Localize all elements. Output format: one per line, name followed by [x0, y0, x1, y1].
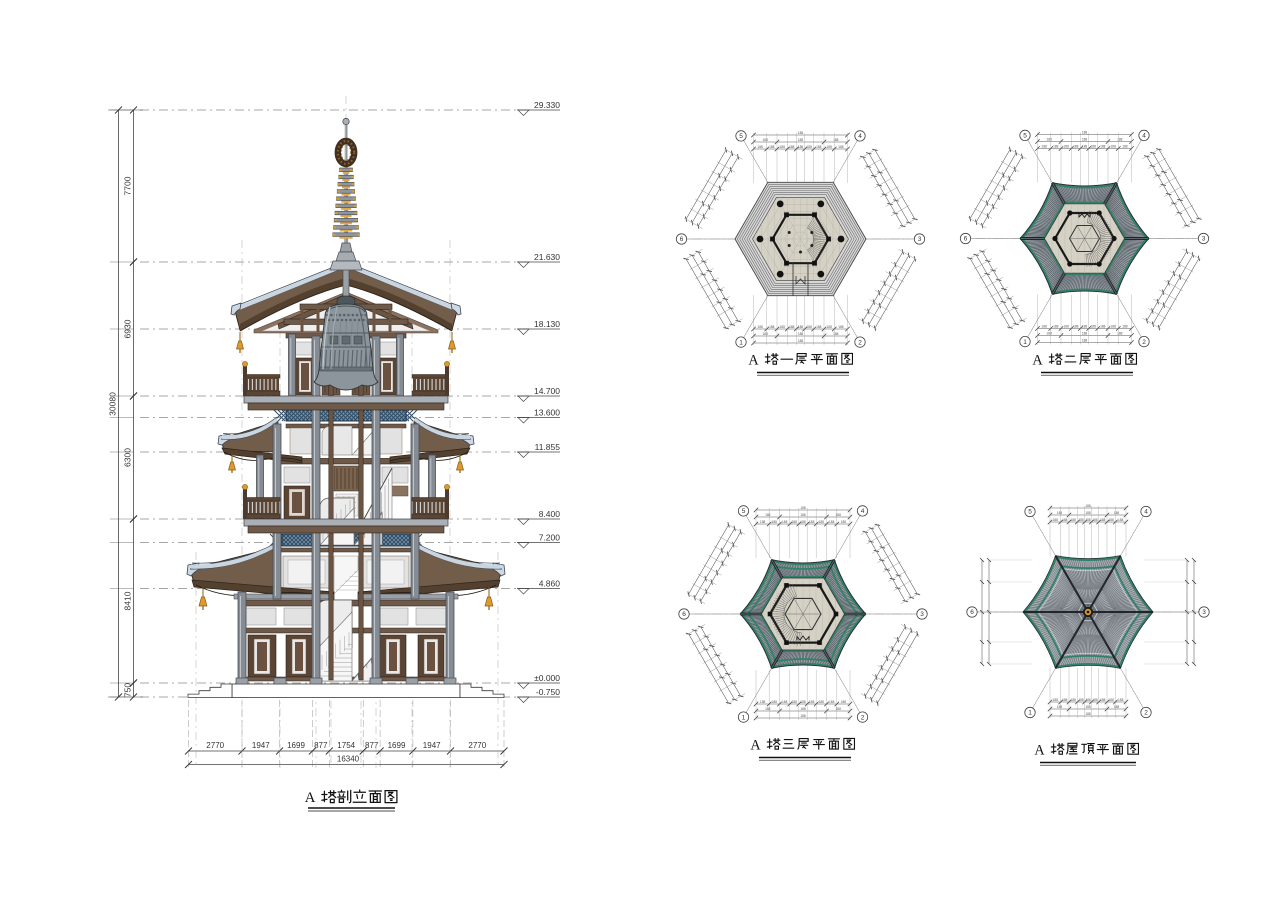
svg-text:188: 188 [769, 325, 775, 329]
svg-text:6: 6 [682, 611, 686, 618]
svg-text:188: 188 [772, 700, 778, 704]
svg-text:188: 188 [1109, 518, 1115, 522]
svg-text:21.630: 21.630 [534, 252, 560, 262]
svg-text:188: 188 [1064, 324, 1070, 328]
svg-text:188: 188 [1047, 137, 1053, 141]
svg-text:5: 5 [1023, 133, 1027, 140]
svg-text:188: 188 [780, 145, 786, 149]
svg-text:188: 188 [1057, 511, 1063, 515]
svg-text:6: 6 [680, 236, 684, 243]
svg-text:188: 188 [827, 145, 833, 149]
svg-text:188: 188 [760, 700, 766, 704]
svg-text:A: A [305, 790, 316, 806]
svg-text:188: 188 [782, 520, 788, 524]
svg-text:14.700: 14.700 [534, 386, 560, 396]
svg-text:188: 188 [792, 700, 798, 704]
svg-text:188: 188 [827, 325, 833, 329]
svg-text:188: 188 [789, 145, 795, 149]
svg-text:188: 188 [800, 700, 806, 704]
svg-text:8.400: 8.400 [539, 509, 561, 519]
svg-text:188: 188 [798, 339, 804, 343]
svg-text:188: 188 [798, 325, 804, 329]
svg-text:188: 188 [798, 138, 804, 142]
svg-text:5: 5 [739, 133, 743, 140]
svg-text:188: 188 [836, 707, 842, 711]
svg-text:188: 188 [1111, 324, 1117, 328]
svg-text:188: 188 [841, 520, 847, 524]
svg-text:1699: 1699 [388, 741, 406, 750]
svg-text:188: 188 [838, 145, 844, 149]
svg-text:188: 188 [1071, 518, 1077, 522]
svg-text:A: A [1032, 353, 1043, 369]
svg-text:188: 188 [1092, 698, 1098, 702]
svg-text:188: 188 [809, 700, 815, 704]
svg-text:188: 188 [1091, 324, 1097, 328]
svg-text:188: 188 [763, 138, 769, 142]
svg-text:188: 188 [809, 520, 815, 524]
svg-text:1: 1 [1028, 710, 1032, 717]
svg-text:13.600: 13.600 [534, 407, 560, 417]
svg-text:6300: 6300 [123, 448, 133, 467]
svg-text:188: 188 [780, 325, 786, 329]
svg-text:1: 1 [739, 339, 743, 346]
svg-text:188: 188 [800, 506, 806, 510]
svg-text:188: 188 [838, 325, 844, 329]
svg-text:18.130: 18.130 [534, 319, 560, 329]
svg-text:877: 877 [365, 741, 379, 750]
svg-text:3: 3 [1202, 236, 1206, 243]
svg-text:4: 4 [861, 508, 865, 515]
svg-text:7700: 7700 [123, 176, 133, 195]
svg-text:11.855: 11.855 [535, 442, 561, 452]
svg-text:188: 188 [1082, 144, 1088, 148]
svg-text:6: 6 [964, 236, 968, 243]
svg-text:188: 188 [1071, 698, 1077, 702]
svg-text:16340: 16340 [337, 755, 360, 764]
svg-text:188: 188 [829, 520, 835, 524]
svg-text:2: 2 [861, 714, 865, 721]
svg-text:188: 188 [1117, 137, 1123, 141]
svg-text:188: 188 [833, 138, 839, 142]
svg-text:188: 188 [1064, 144, 1070, 148]
svg-text:188: 188 [1118, 698, 1124, 702]
svg-text:7.200: 7.200 [539, 532, 561, 542]
svg-text:188: 188 [1041, 324, 1047, 328]
svg-text:188: 188 [1053, 698, 1059, 702]
svg-text:188: 188 [836, 513, 842, 517]
svg-text:188: 188 [1122, 144, 1128, 148]
svg-text:188: 188 [792, 520, 798, 524]
svg-text:2: 2 [1144, 710, 1148, 717]
svg-text:188: 188 [819, 700, 825, 704]
svg-text:188: 188 [1078, 698, 1084, 702]
svg-text:750: 750 [123, 683, 133, 697]
svg-text:188: 188 [1082, 331, 1088, 335]
svg-text:188: 188 [816, 145, 822, 149]
svg-text:1754: 1754 [337, 741, 355, 750]
svg-text:188: 188 [829, 700, 835, 704]
svg-text:188: 188 [798, 131, 804, 135]
svg-text:188: 188 [798, 145, 804, 149]
svg-text:188: 188 [841, 700, 847, 704]
svg-text:188: 188 [819, 520, 825, 524]
svg-text:8410: 8410 [123, 591, 133, 610]
svg-text:188: 188 [1082, 324, 1088, 328]
svg-text:188: 188 [800, 714, 806, 718]
svg-text:188: 188 [1062, 698, 1068, 702]
svg-text:188: 188 [1073, 324, 1079, 328]
svg-text:4: 4 [1142, 133, 1146, 140]
svg-text:3: 3 [918, 236, 922, 243]
svg-text:2: 2 [858, 339, 862, 346]
svg-text:188: 188 [1114, 705, 1120, 709]
svg-text:188: 188 [800, 513, 806, 517]
svg-text:188: 188 [1047, 331, 1053, 335]
svg-text:188: 188 [757, 145, 763, 149]
svg-text:188: 188 [1114, 511, 1120, 515]
svg-text:188: 188 [1100, 518, 1106, 522]
svg-text:188: 188 [1109, 698, 1115, 702]
svg-text:188: 188 [1082, 130, 1088, 134]
svg-text:188: 188 [1085, 504, 1091, 508]
svg-text:188: 188 [1092, 518, 1098, 522]
svg-text:188: 188 [1053, 518, 1059, 522]
svg-text:188: 188 [1117, 331, 1123, 335]
svg-text:2: 2 [1142, 339, 1146, 346]
svg-text:188: 188 [765, 513, 771, 517]
svg-text:A: A [1034, 743, 1045, 759]
svg-text:188: 188 [1118, 518, 1124, 522]
svg-text:188: 188 [782, 700, 788, 704]
svg-text:188: 188 [1085, 698, 1091, 702]
svg-text:188: 188 [1111, 144, 1117, 148]
svg-text:188: 188 [789, 325, 795, 329]
svg-text:1: 1 [742, 714, 746, 721]
svg-text:4: 4 [858, 133, 862, 140]
svg-text:2770: 2770 [468, 741, 486, 750]
svg-text:188: 188 [1057, 705, 1063, 709]
svg-text:188: 188 [800, 707, 806, 711]
svg-text:188: 188 [757, 325, 763, 329]
svg-text:3: 3 [1202, 609, 1206, 616]
svg-text:1699: 1699 [287, 741, 305, 750]
svg-text:188: 188 [1085, 511, 1091, 515]
svg-text:2770: 2770 [206, 741, 224, 750]
svg-text:188: 188 [1085, 518, 1091, 522]
svg-text:1947: 1947 [252, 741, 270, 750]
svg-text:188: 188 [1122, 324, 1128, 328]
svg-text:-0.750: -0.750 [536, 687, 560, 697]
svg-text:188: 188 [1085, 712, 1091, 716]
svg-text:29.330: 29.330 [534, 100, 560, 110]
svg-text:188: 188 [1085, 705, 1091, 709]
svg-text:188: 188 [1041, 144, 1047, 148]
svg-text:188: 188 [1100, 698, 1106, 702]
svg-text:188: 188 [760, 520, 766, 524]
svg-text:1947: 1947 [423, 741, 441, 750]
svg-text:4.860: 4.860 [539, 578, 561, 588]
svg-text:188: 188 [1062, 518, 1068, 522]
svg-text:1: 1 [1023, 339, 1027, 346]
svg-text:188: 188 [765, 707, 771, 711]
svg-text:188: 188 [1100, 324, 1106, 328]
svg-text:188: 188 [833, 332, 839, 336]
svg-text:6: 6 [970, 609, 974, 616]
svg-text:A: A [750, 738, 761, 754]
svg-text:5: 5 [1028, 509, 1032, 516]
svg-text:188: 188 [798, 332, 804, 336]
svg-text:188: 188 [1078, 518, 1084, 522]
svg-text:188: 188 [1100, 144, 1106, 148]
svg-text:188: 188 [807, 145, 813, 149]
svg-text:30080: 30080 [108, 392, 118, 416]
svg-text:A: A [748, 353, 759, 369]
svg-text:6930: 6930 [123, 319, 133, 338]
svg-text:188: 188 [772, 520, 778, 524]
svg-text:188: 188 [769, 145, 775, 149]
svg-text:188: 188 [1053, 324, 1059, 328]
svg-text:3: 3 [920, 611, 924, 618]
svg-text:5: 5 [742, 508, 746, 515]
svg-text:4: 4 [1144, 509, 1148, 516]
svg-text:188: 188 [1082, 137, 1088, 141]
svg-text:188: 188 [807, 325, 813, 329]
svg-text:188: 188 [763, 332, 769, 336]
svg-text:±0.000: ±0.000 [534, 673, 560, 683]
svg-text:188: 188 [1082, 338, 1088, 342]
svg-text:188: 188 [800, 520, 806, 524]
svg-text:188: 188 [1053, 144, 1059, 148]
svg-text:188: 188 [1091, 144, 1097, 148]
svg-text:188: 188 [1073, 144, 1079, 148]
svg-text:188: 188 [816, 325, 822, 329]
